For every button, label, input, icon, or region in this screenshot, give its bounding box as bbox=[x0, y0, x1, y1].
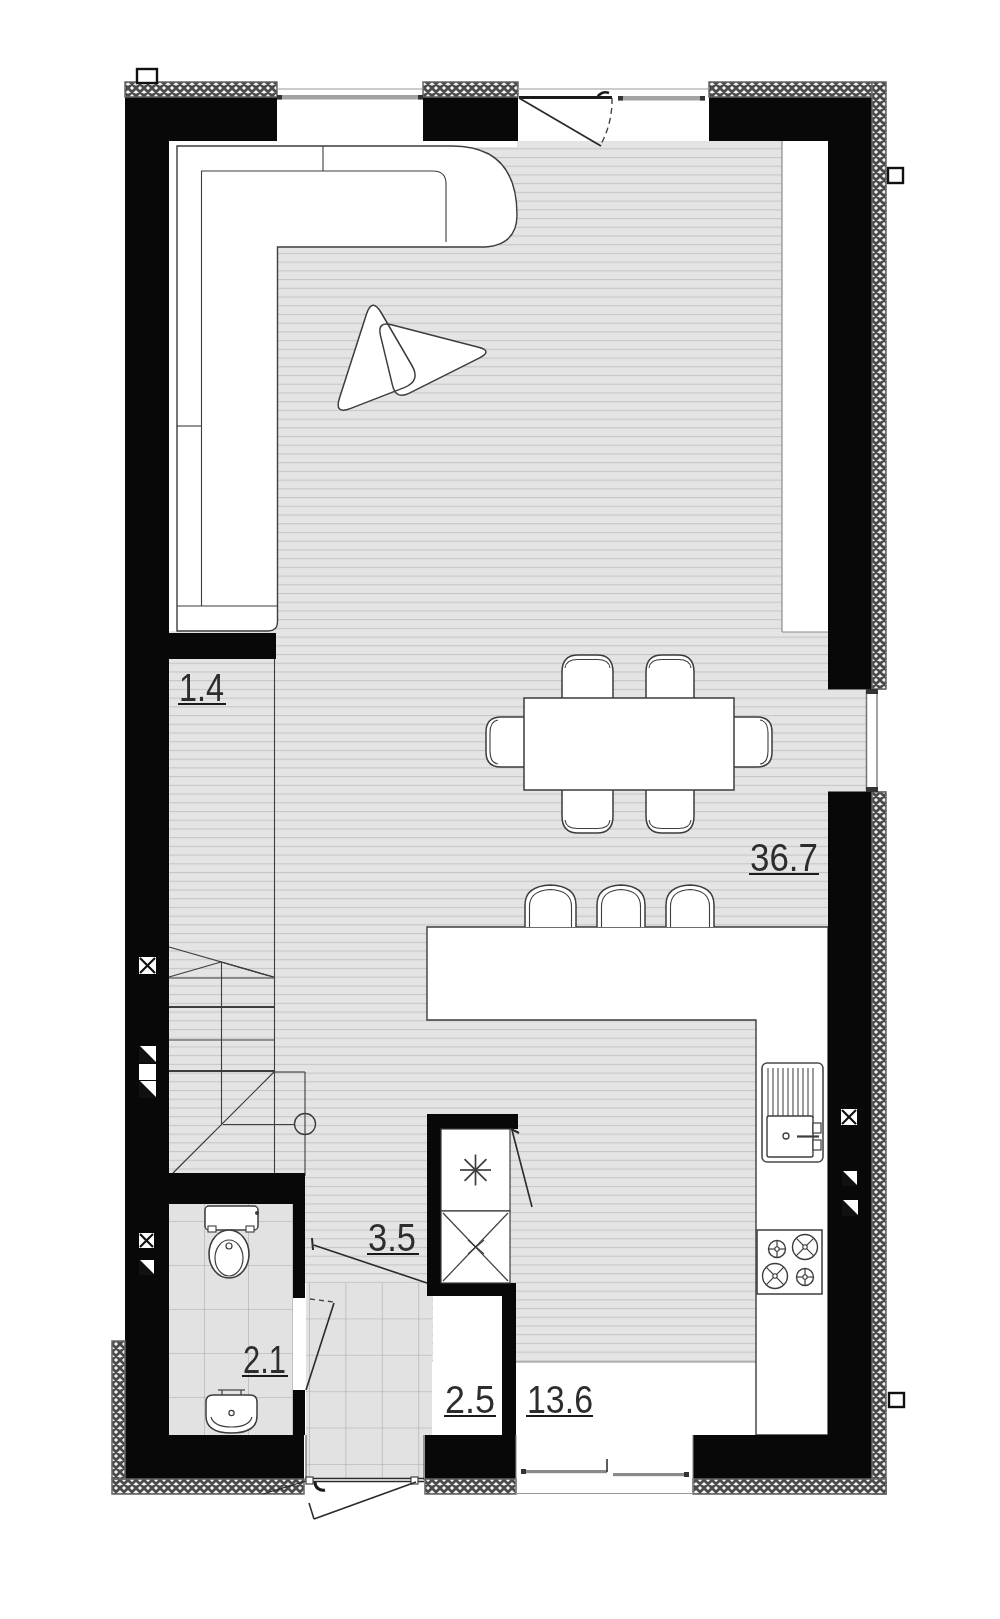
svg-text:3.5: 3.5 bbox=[368, 1217, 416, 1259]
svg-text:2.1: 2.1 bbox=[243, 1339, 286, 1381]
svg-text:1.4: 1.4 bbox=[179, 667, 224, 709]
svg-text:2.5: 2.5 bbox=[445, 1379, 495, 1421]
svg-text:36.7: 36.7 bbox=[750, 837, 818, 879]
svg-text:13.6: 13.6 bbox=[527, 1379, 593, 1421]
